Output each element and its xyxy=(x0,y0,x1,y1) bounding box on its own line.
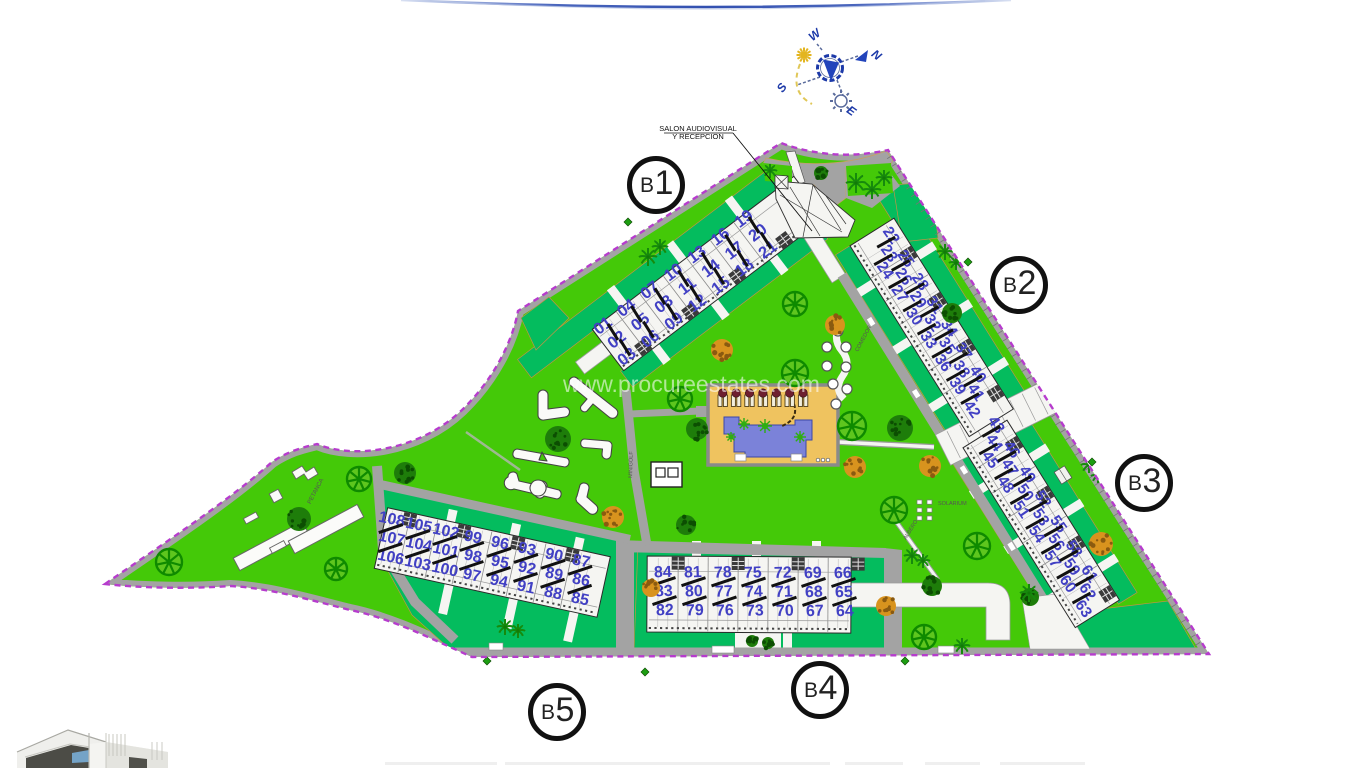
svg-text:B: B xyxy=(640,174,654,197)
svg-text:5: 5 xyxy=(556,691,575,729)
svg-text:3: 3 xyxy=(1143,462,1162,500)
svg-text:B: B xyxy=(1128,472,1142,495)
svg-text:1: 1 xyxy=(655,164,674,202)
svg-text:76: 76 xyxy=(716,602,734,620)
svg-text:82: 82 xyxy=(656,602,674,620)
svg-text:B: B xyxy=(1003,274,1017,297)
svg-text:2: 2 xyxy=(1018,264,1037,302)
svg-text:B: B xyxy=(541,701,555,724)
svg-text:B: B xyxy=(804,679,818,702)
svg-text:64: 64 xyxy=(836,603,854,621)
svg-text:MINIGOLF: MINIGOLF xyxy=(628,451,635,478)
svg-text:www.procureestates.com: www.procureestates.com xyxy=(562,371,820,397)
svg-text:79: 79 xyxy=(686,602,704,620)
svg-text:SOLARIUM: SOLARIUM xyxy=(938,501,967,507)
svg-text:73: 73 xyxy=(746,602,764,620)
svg-text:4: 4 xyxy=(819,669,838,707)
svg-text:67: 67 xyxy=(806,603,824,621)
svg-text:70: 70 xyxy=(776,602,794,620)
